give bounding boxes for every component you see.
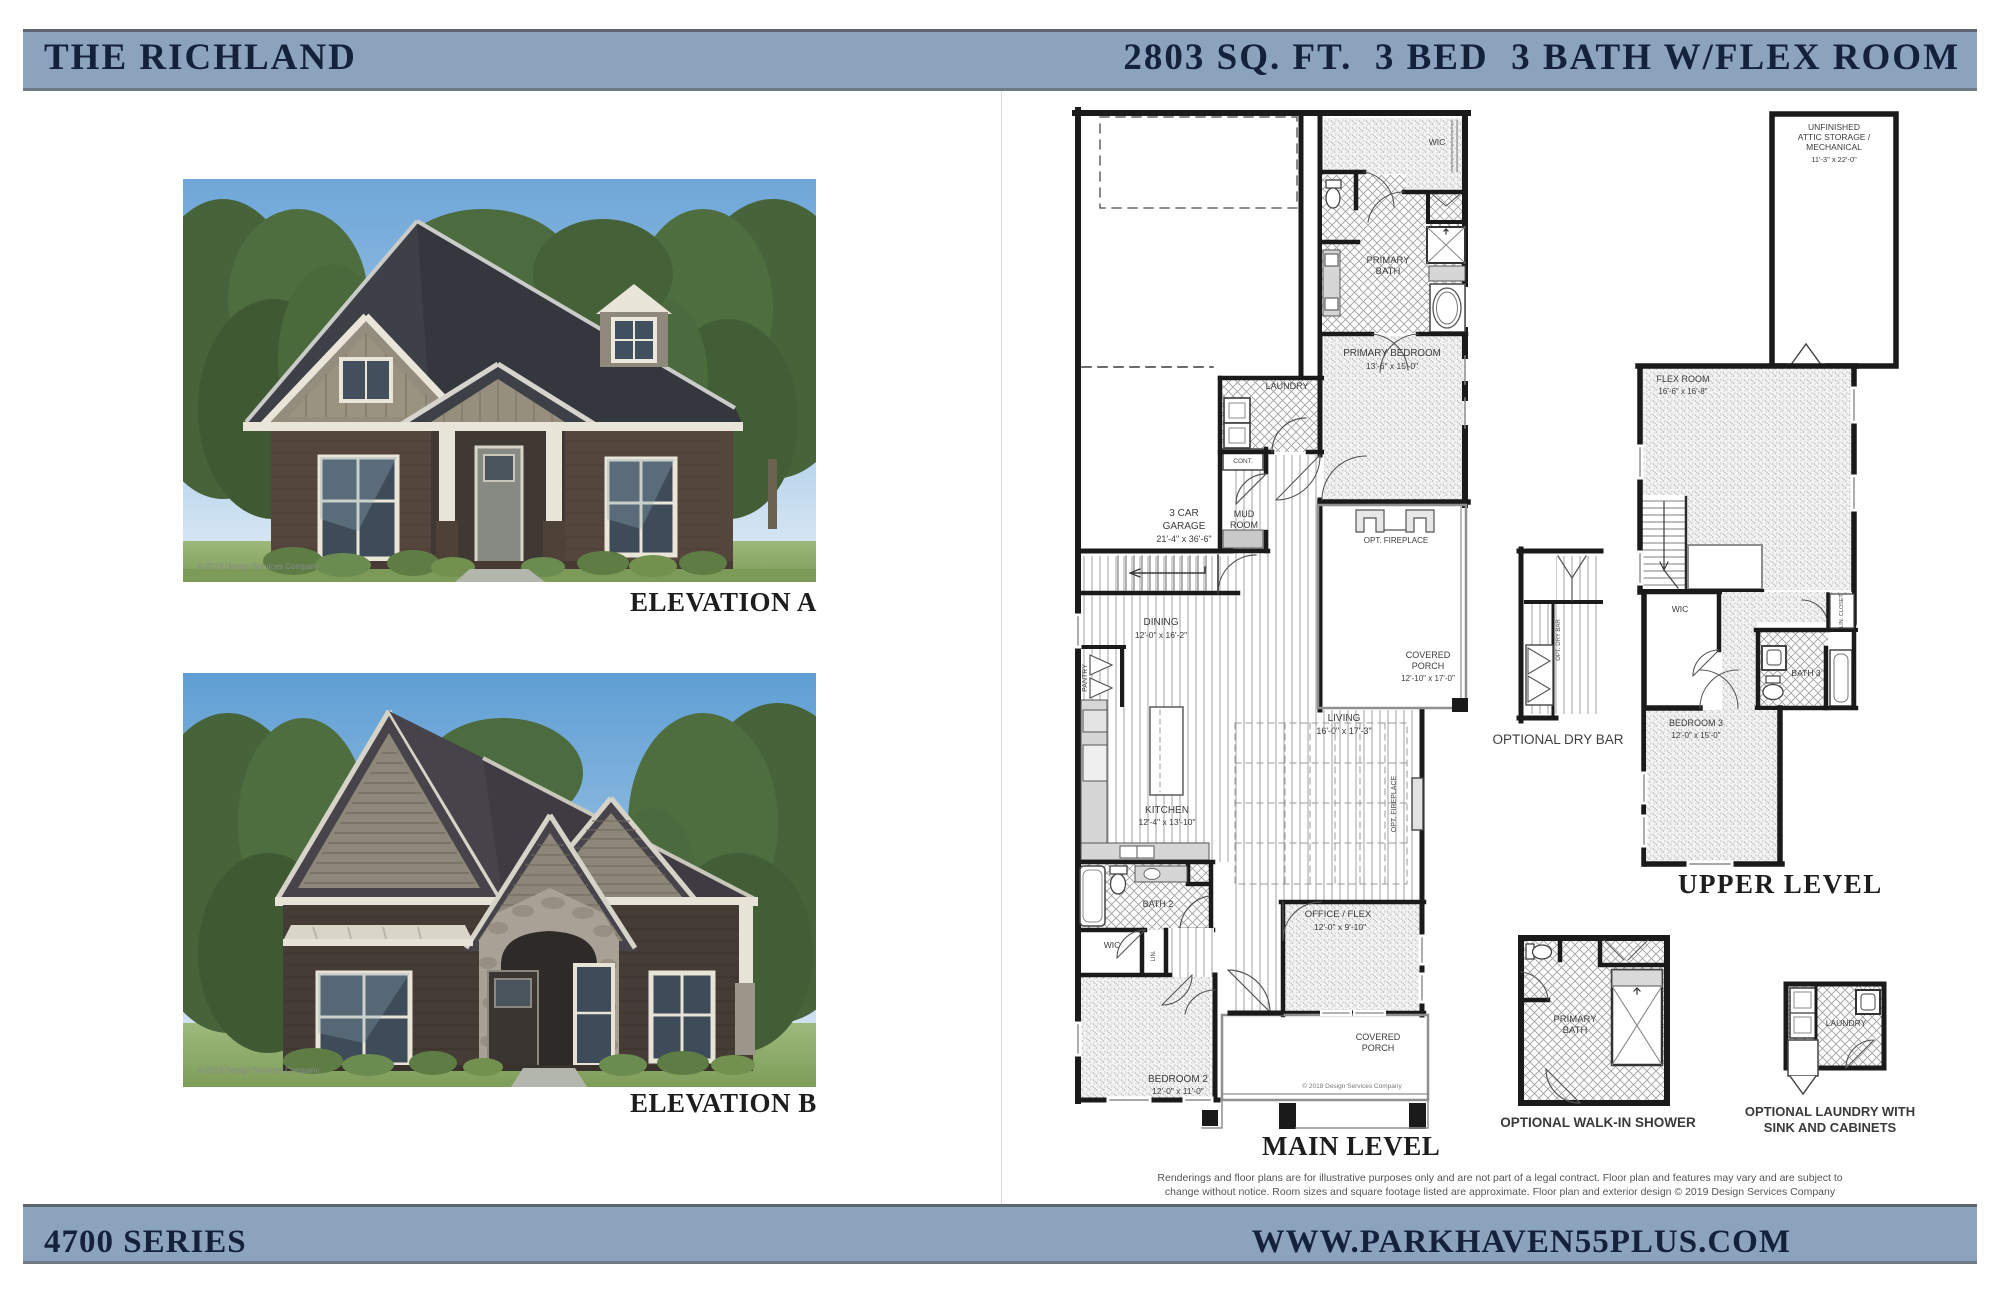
svg-text:16'-0" x 17'-3": 16'-0" x 17'-3" <box>1316 726 1371 736</box>
svg-text:PORCH: PORCH <box>1362 1043 1395 1053</box>
svg-text:12'-10" x 17'-0": 12'-10" x 17'-0" <box>1401 674 1455 683</box>
svg-text:FLEX ROOM: FLEX ROOM <box>1656 374 1709 384</box>
svg-text:COVERED: COVERED <box>1406 650 1451 660</box>
svg-text:BEDROOM 2: BEDROOM 2 <box>1148 1074 1208 1085</box>
svg-text:CONT.: CONT. <box>1233 458 1253 465</box>
svg-text:12'-0" x 11'-0": 12'-0" x 11'-0" <box>1152 1086 1204 1096</box>
svg-text:BATH: BATH <box>1563 1025 1588 1036</box>
svg-text:12'-4" x 13'-10": 12'-4" x 13'-10" <box>1138 817 1195 827</box>
svg-text:PANTRY: PANTRY <box>1082 664 1089 692</box>
svg-text:LIN.: LIN. <box>1151 950 1157 961</box>
svg-text:16'-6" x 16'-8": 16'-6" x 16'-8" <box>1658 387 1707 396</box>
svg-text:COVERED: COVERED <box>1356 1032 1401 1042</box>
svg-text:LAUNDRY: LAUNDRY <box>1266 381 1309 391</box>
svg-text:LIVING: LIVING <box>1328 713 1361 724</box>
svg-text:BATH 3: BATH 3 <box>1791 668 1820 678</box>
svg-text:OPT. FIREPLACE: OPT. FIREPLACE <box>1391 775 1398 832</box>
svg-text:OPTIONAL LAUNDRY WITH: OPTIONAL LAUNDRY WITH <box>1745 1104 1915 1119</box>
svg-text:OPT. DRY BAR: OPT. DRY BAR <box>1556 619 1562 661</box>
svg-text:WIC: WIC <box>1104 940 1121 950</box>
svg-text:OPTIONAL WALK-IN SHOWER: OPTIONAL WALK-IN SHOWER <box>1500 1115 1696 1130</box>
svg-text:UNFINISHED: UNFINISHED <box>1808 122 1860 132</box>
svg-text:11'-3" x 22'-0": 11'-3" x 22'-0" <box>1811 155 1857 164</box>
svg-text:OFFICE / FLEX: OFFICE / FLEX <box>1305 909 1372 920</box>
svg-text:WIC: WIC <box>1672 604 1689 614</box>
svg-text:BEDROOM 3: BEDROOM 3 <box>1669 718 1723 728</box>
svg-text:OPTIONAL DRY BAR: OPTIONAL DRY BAR <box>1492 732 1623 747</box>
svg-text:DINING: DINING <box>1144 617 1179 628</box>
svg-text:12'-0" x 15'-0": 12'-0" x 15'-0" <box>1671 731 1720 740</box>
svg-text:© 2019 Design Services Company: © 2019 Design Services Company <box>197 1066 319 1075</box>
svg-text:PORCH: PORCH <box>1412 661 1445 671</box>
svg-text:3 CAR: 3 CAR <box>1169 508 1198 519</box>
svg-text:© 2018 Design Services Company: © 2018 Design Services Company <box>1302 1082 1402 1090</box>
svg-text:LIN. CLOSET: LIN. CLOSET <box>1839 594 1845 628</box>
svg-text:PRIMARY: PRIMARY <box>1366 255 1410 266</box>
svg-text:BATH 2: BATH 2 <box>1143 899 1174 909</box>
svg-text:21'-4" x 36'-6": 21'-4" x 36'-6" <box>1156 534 1211 544</box>
svg-text:SINK AND CABINETS: SINK AND CABINETS <box>1764 1120 1897 1135</box>
svg-text:12'-0" x 16'-2": 12'-0" x 16'-2" <box>1135 630 1187 640</box>
svg-text:PRIMARY: PRIMARY <box>1553 1014 1597 1025</box>
svg-text:GARAGE: GARAGE <box>1163 521 1206 532</box>
svg-text:PRIMARY BEDROOM: PRIMARY BEDROOM <box>1343 348 1441 359</box>
svg-text:ATTIC STORAGE /: ATTIC STORAGE / <box>1798 132 1871 142</box>
svg-text:KITCHEN: KITCHEN <box>1145 805 1189 816</box>
svg-text:MECHANICAL: MECHANICAL <box>1806 142 1862 152</box>
svg-text:OPT. FIREPLACE: OPT. FIREPLACE <box>1364 536 1428 545</box>
svg-text:BATH: BATH <box>1376 266 1401 277</box>
svg-text:13'-6" x 15'-0": 13'-6" x 15'-0" <box>1366 361 1418 371</box>
svg-text:© 2019 Design Services Company: © 2019 Design Services Company <box>197 562 319 571</box>
svg-text:LAUNDRY: LAUNDRY <box>1826 1018 1867 1028</box>
svg-text:MUD: MUD <box>1234 509 1255 519</box>
svg-text:12'-0" x 9'-10": 12'-0" x 9'-10" <box>1314 922 1366 932</box>
svg-text:ROOM: ROOM <box>1230 520 1258 530</box>
svg-text:WIC: WIC <box>1429 137 1446 147</box>
